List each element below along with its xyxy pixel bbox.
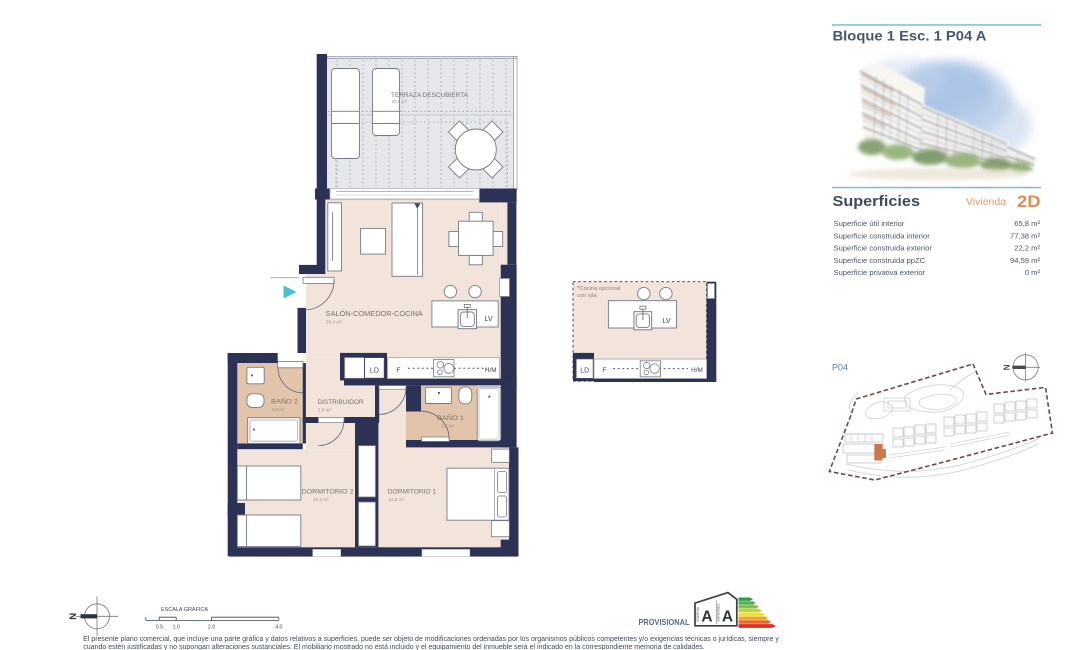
svg-text:1.0: 1.0 bbox=[173, 625, 180, 631]
svg-text:F: F bbox=[396, 367, 400, 374]
svg-text:Vivienda: Vivienda bbox=[966, 197, 1006, 208]
svg-text:BAÑO 1: BAÑO 1 bbox=[437, 413, 464, 422]
svg-text:ENERGIA: ENERGIA bbox=[696, 606, 700, 621]
svg-text:A: A bbox=[722, 609, 733, 626]
svg-text:Bloque 1 Esc. 1 P04 A: Bloque 1 Esc. 1 P04 A bbox=[833, 29, 987, 44]
svg-text:Superficie construida exterior: Superficie construida exterior bbox=[834, 244, 933, 253]
svg-text:EMISIONES: EMISIONES bbox=[717, 604, 721, 622]
svg-text:ESCALA GRÁFICA: ESCALA GRÁFICA bbox=[161, 606, 208, 613]
svg-text:N: N bbox=[68, 613, 79, 620]
svg-text:2,9 m²: 2,9 m² bbox=[318, 408, 331, 413]
svg-text:28,4 m²: 28,4 m² bbox=[326, 320, 342, 325]
svg-text:DORMITORIO 1: DORMITORIO 1 bbox=[388, 489, 437, 496]
svg-text:P04: P04 bbox=[832, 363, 848, 373]
svg-text:0 m²: 0 m² bbox=[1025, 268, 1041, 277]
svg-text:A: A bbox=[701, 609, 712, 626]
svg-text:77,38 m²: 77,38 m² bbox=[1010, 231, 1040, 240]
svg-text:22,2 m²: 22,2 m² bbox=[1014, 244, 1040, 253]
svg-text:3,8 m²: 3,8 m² bbox=[272, 407, 285, 412]
svg-text:4.0: 4.0 bbox=[275, 625, 282, 631]
svg-text:Superficie útil interior: Superficie útil interior bbox=[834, 219, 905, 228]
svg-text:0.5: 0.5 bbox=[156, 625, 163, 631]
svg-text:2D: 2D bbox=[1017, 193, 1041, 211]
svg-text:cuando estén justificadas y no: cuando estén justificadas y no supongan … bbox=[83, 644, 704, 650]
svg-text:BAÑO 2: BAÑO 2 bbox=[271, 396, 298, 405]
svg-text:N: N bbox=[1003, 364, 1012, 370]
svg-text:H/M: H/M bbox=[691, 367, 703, 374]
svg-text:DISTRIBUIDOR: DISTRIBUIDOR bbox=[318, 399, 364, 406]
svg-text:Superficie construida ppZC: Superficie construida ppZC bbox=[834, 256, 926, 265]
svg-text:*Cocina opcional: *Cocina opcional bbox=[577, 286, 621, 292]
svg-text:3,5 m²: 3,5 m² bbox=[441, 423, 454, 428]
svg-text:2.0: 2.0 bbox=[208, 625, 215, 631]
svg-text:LD: LD bbox=[370, 367, 379, 374]
svg-text:con isla: con isla bbox=[577, 293, 597, 299]
svg-text:14,8 m²: 14,8 m² bbox=[389, 497, 405, 502]
svg-text:TERRAZA DESCUBIERTA: TERRAZA DESCUBIERTA bbox=[391, 92, 468, 99]
svg-text:PROVISIONAL: PROVISIONAL bbox=[639, 618, 690, 627]
svg-text:Superficie privativa exterior: Superficie privativa exterior bbox=[834, 268, 926, 277]
svg-text:65,8 m²: 65,8 m² bbox=[1014, 219, 1040, 228]
svg-text:94,59 m²: 94,59 m² bbox=[1010, 256, 1040, 265]
svg-text:Superficie construida interior: Superficie construida interior bbox=[834, 231, 931, 240]
svg-text:12,2 m²: 12,2 m² bbox=[313, 497, 329, 502]
svg-text:F: F bbox=[602, 367, 606, 374]
svg-text:El presente plano comercial, q: El presente plano comercial, que incluye… bbox=[83, 636, 779, 643]
svg-text:LD: LD bbox=[580, 368, 589, 375]
svg-text:LV: LV bbox=[484, 314, 492, 323]
svg-text:LV: LV bbox=[662, 316, 670, 325]
svg-text:SALÓN-COMEDOR-COCINA: SALÓN-COMEDOR-COCINA bbox=[326, 309, 423, 318]
svg-text:Superficies: Superficies bbox=[833, 193, 921, 210]
svg-text:20,6 m²: 20,6 m² bbox=[392, 99, 408, 104]
svg-text:DORMITORIO 2: DORMITORIO 2 bbox=[302, 489, 354, 496]
svg-text:H/M: H/M bbox=[485, 367, 497, 374]
